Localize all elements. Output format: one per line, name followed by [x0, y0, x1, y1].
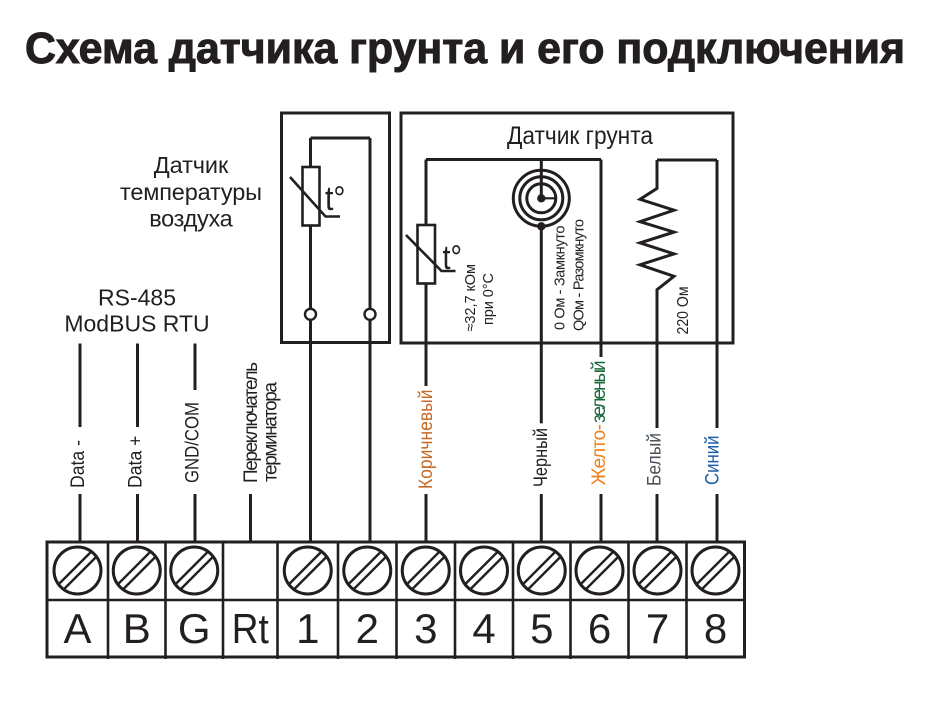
svg-text:8: 8: [704, 605, 727, 652]
svg-text:при 0°C: при 0°C: [481, 273, 497, 325]
svg-text:G: G: [178, 605, 211, 652]
svg-text:2: 2: [356, 605, 379, 652]
svg-text:Коричневый: Коричневый: [416, 390, 437, 490]
svg-text:ModBUS RTU: ModBUS RTU: [64, 311, 209, 337]
svg-text:Data +: Data +: [126, 436, 147, 489]
svg-text:GND/COM: GND/COM: [183, 402, 204, 483]
svg-text:Желто-: Желто-: [589, 424, 610, 485]
svg-text:воздуха: воздуха: [149, 205, 233, 231]
svg-text:терминатора: терминатора: [261, 382, 282, 482]
svg-text:Датчик: Датчик: [154, 152, 229, 178]
svg-text:5: 5: [530, 605, 553, 652]
svg-text:6: 6: [588, 605, 611, 652]
svg-text:Белый: Белый: [645, 433, 666, 486]
svg-text:1: 1: [296, 605, 319, 652]
svg-text:7: 7: [646, 605, 669, 652]
svg-text:Data -: Data -: [68, 440, 89, 488]
svg-text:Черный: Черный: [531, 428, 552, 487]
svg-text:Схема датчика грунта и его под: Схема датчика грунта и его подключения: [25, 24, 905, 73]
svg-text:t°: t°: [443, 239, 463, 277]
svg-text:Синий: Синий: [703, 436, 724, 486]
svg-text:≈32,7 кОм: ≈32,7 кОм: [463, 264, 479, 332]
svg-text:температуры: температуры: [120, 179, 262, 205]
svg-text:RS-485: RS-485: [98, 285, 176, 311]
svg-text:B: B: [123, 605, 151, 652]
svg-text:3: 3: [414, 605, 437, 652]
svg-text:Rt: Rt: [232, 605, 269, 652]
svg-text:Датчик грунта: Датчик грунта: [507, 122, 653, 150]
svg-text:Переключатель: Переключатель: [241, 362, 262, 483]
svg-text:A: A: [63, 605, 91, 652]
svg-text:0 Ом - Замкнуто: 0 Ом - Замкнуто: [553, 226, 569, 331]
svg-text:t°: t°: [325, 180, 346, 218]
svg-text:220 Ом: 220 Ом: [675, 287, 692, 335]
svg-text:зеленый: зеленый: [589, 360, 610, 423]
svg-text:QОм - Разомкнуто: QОм - Разомкнуто: [572, 219, 588, 331]
svg-text:4: 4: [472, 605, 495, 652]
